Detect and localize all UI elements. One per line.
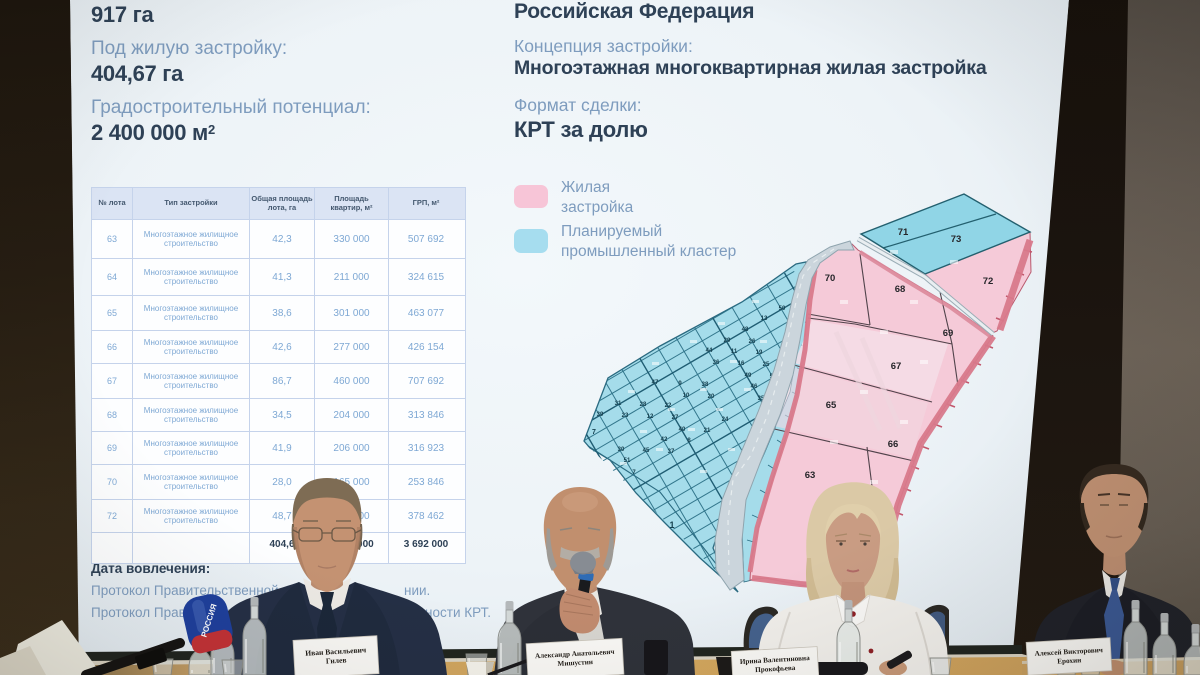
svg-text:Гилев: Гилев	[326, 655, 347, 665]
svg-text:Ерохин: Ерохин	[1057, 656, 1082, 665]
